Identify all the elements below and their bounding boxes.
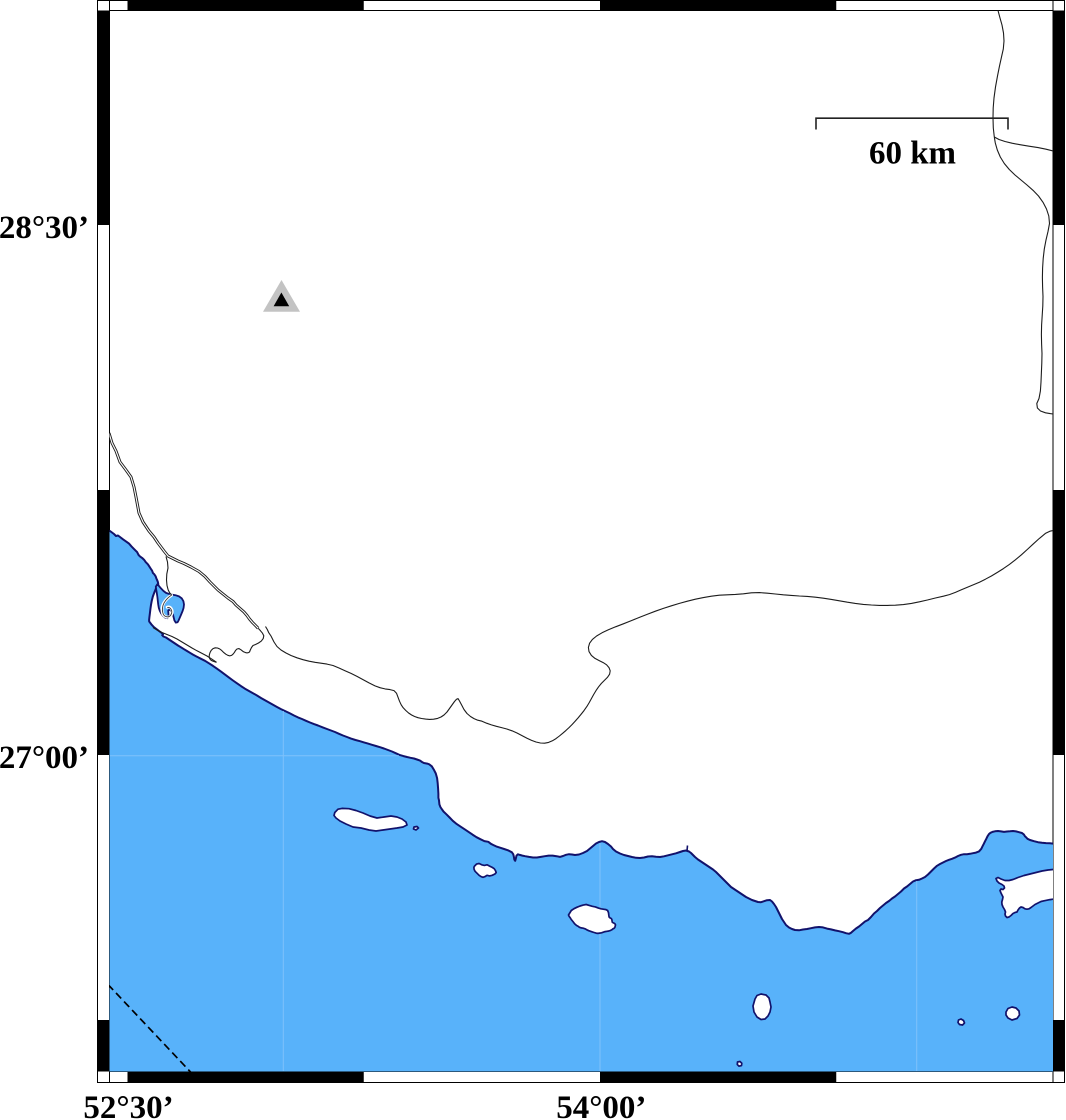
svg-text:52°30’: 52°30’ <box>83 1090 173 1120</box>
svg-text:28°30’: 28°30’ <box>0 210 89 246</box>
svg-text:27°00’: 27°00’ <box>0 740 89 776</box>
svg-text:54°00’: 54°00’ <box>556 1090 646 1120</box>
svg-text:60 km: 60 km <box>869 136 956 172</box>
